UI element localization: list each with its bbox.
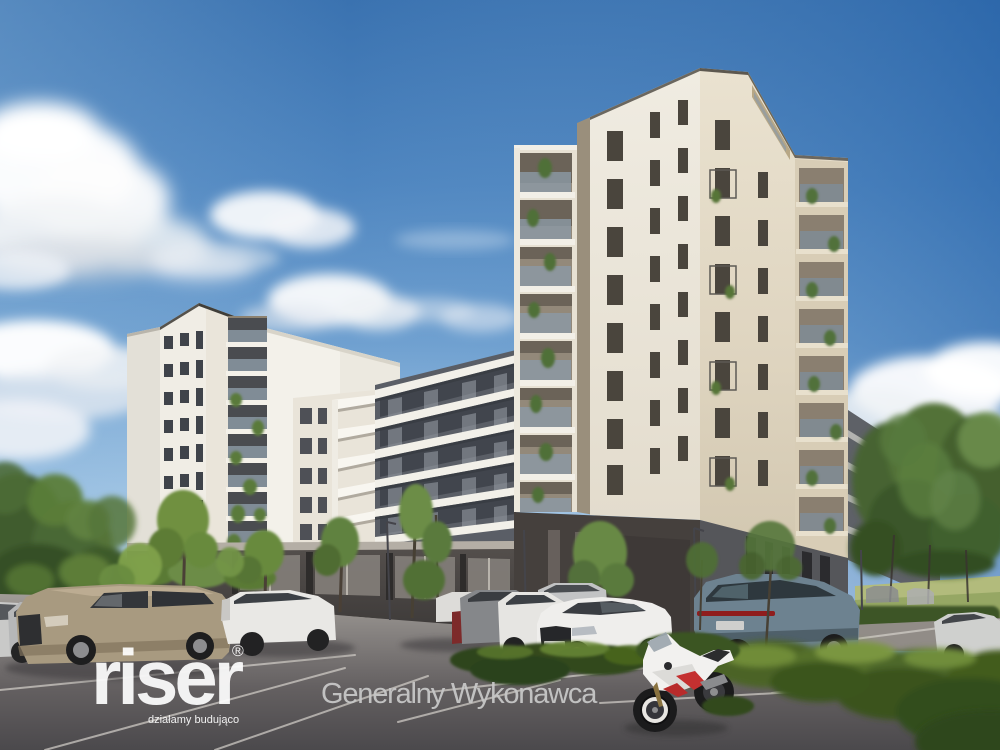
svg-text:działamy budująco: działamy budująco [148, 714, 239, 726]
svg-text:riser: riser [91, 633, 244, 721]
svg-text:®: ® [232, 643, 244, 660]
svg-text:Generalny Wykonawca: Generalny Wykonawca [321, 678, 598, 710]
